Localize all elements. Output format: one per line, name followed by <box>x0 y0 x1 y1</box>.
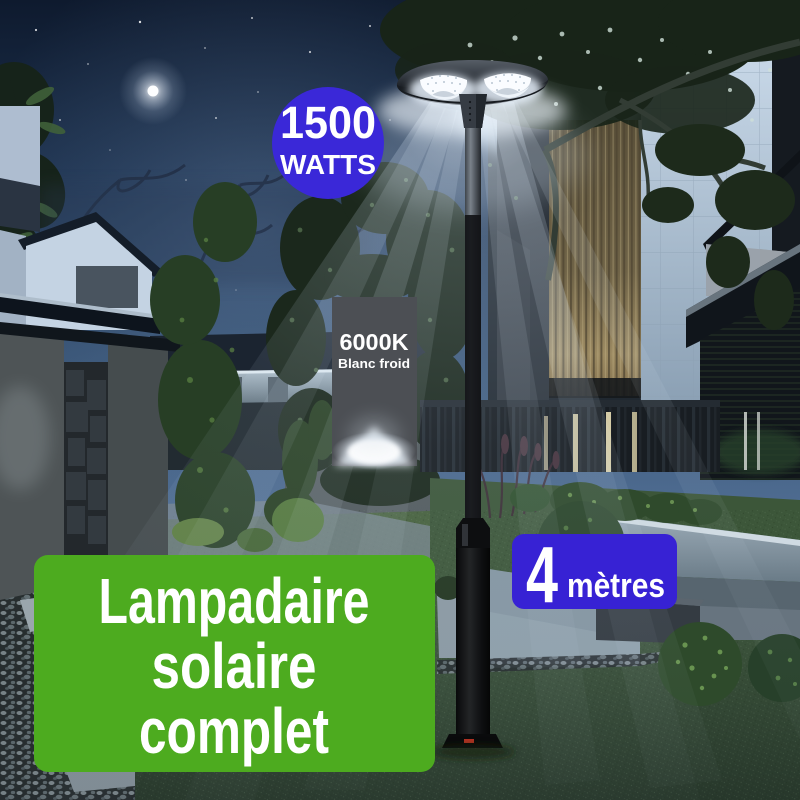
svg-text:mètres: mètres <box>567 567 665 605</box>
svg-text:Blanc froid: Blanc froid <box>338 356 410 371</box>
svg-text:1500: 1500 <box>280 97 376 148</box>
svg-text:Lampadaire: Lampadaire <box>99 565 370 637</box>
svg-text:4: 4 <box>526 530 558 619</box>
svg-text:WATTS: WATTS <box>280 149 376 180</box>
svg-text:solaire: solaire <box>152 630 317 702</box>
svg-text:6000K: 6000K <box>340 329 409 355</box>
svg-text:complet: complet <box>139 695 329 767</box>
